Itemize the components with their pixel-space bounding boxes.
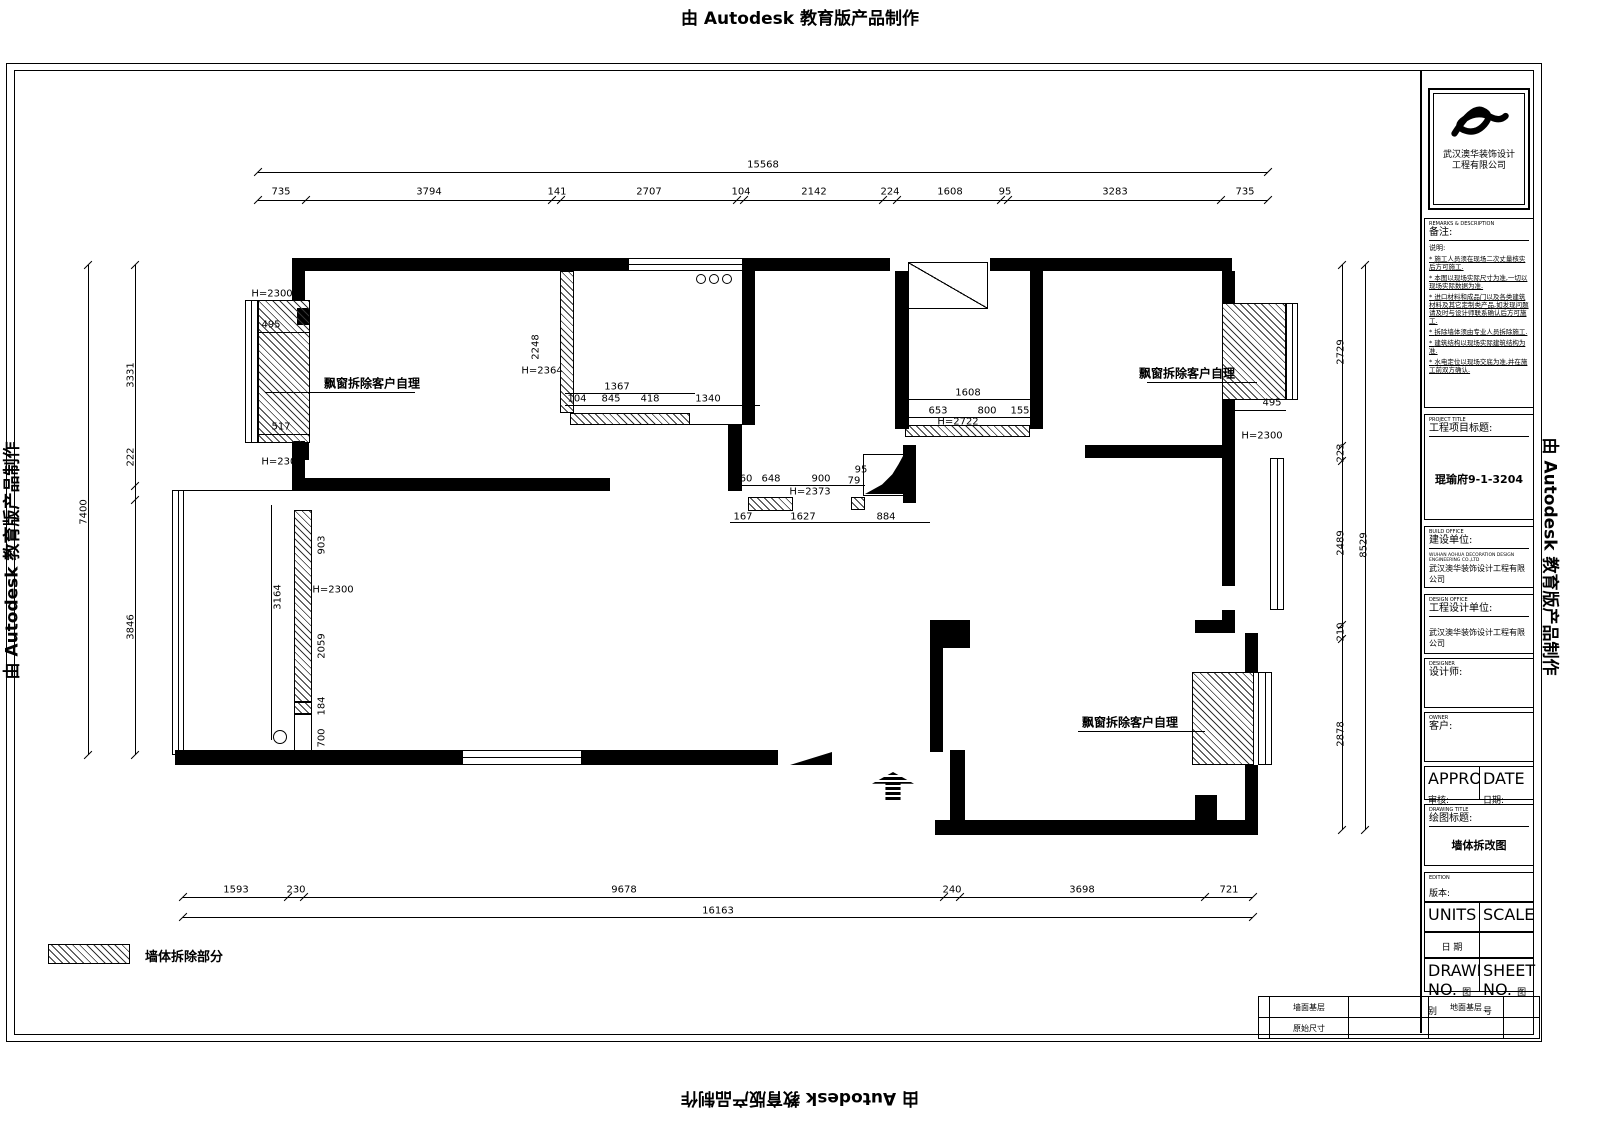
demolition-hatch <box>294 702 312 714</box>
wall <box>292 271 305 301</box>
dim-label: 1367 <box>604 382 629 393</box>
demolition-hatch <box>748 497 793 511</box>
dim-label: 721 <box>1219 885 1238 896</box>
demolition-hatch <box>560 271 574 413</box>
dim-label: 1340 <box>695 394 720 405</box>
base-layer-cell <box>1349 1018 1429 1039</box>
circle <box>273 730 287 744</box>
dim-label: H=2300 <box>261 457 302 468</box>
wall <box>292 478 610 491</box>
designer-label: 设计师: <box>1429 667 1529 680</box>
dim-label: 16163 <box>702 906 734 917</box>
dim-label: 1608 <box>955 388 980 399</box>
dim-label: 903 <box>317 535 328 554</box>
company-logo: 武汉澳华装饰设计 工程有限公司 <box>1428 88 1530 210</box>
legend-swatch <box>48 944 130 964</box>
remarks-section: REMARKS & DESCRIPTION 备注: 说明: 施工人员须在现场二次… <box>1424 218 1534 408</box>
logo-company-line1: 武汉澳华装饰设计 <box>1443 150 1515 160</box>
owner-unit-value-en: WUHAN AOHUA DECORATION DESIGN ENGINEERIN… <box>1429 553 1529 563</box>
wall <box>950 750 965 835</box>
stove-burner <box>696 274 706 284</box>
design-unit-label: 工程设计单位: <box>1429 603 1529 617</box>
wall <box>1222 271 1235 303</box>
base-layer-cell: 地面基层 <box>1429 997 1504 1018</box>
dim-label: 104 <box>567 394 586 405</box>
dim-label: 240 <box>942 885 961 896</box>
annotation-label: 飘窗拆除客户自理 <box>1139 365 1235 382</box>
dim-line <box>258 434 310 435</box>
dim-label: 95 <box>855 465 868 476</box>
dim-label: 735 <box>271 187 290 198</box>
dim-label: 1608 <box>937 187 962 198</box>
door-symbol <box>790 752 832 765</box>
dim-line <box>183 917 1253 918</box>
remarks-desc-label: 说明: <box>1429 243 1529 253</box>
base-layer-cell <box>1259 997 1270 1018</box>
dim-label: 224 <box>880 187 899 198</box>
dim-label: 9678 <box>611 885 636 896</box>
edition-label: 版本: <box>1429 889 1450 899</box>
project-title-section: PROJECT TITLE 工程项目标题: 琨瑜府9-1-3204 <box>1424 414 1534 520</box>
window <box>172 490 184 755</box>
dim-label: 495 <box>1262 398 1281 409</box>
dim-label: 2142 <box>801 187 826 198</box>
dim-label: 15568 <box>747 160 779 171</box>
remark-note: 进口材料和成品门以及各类建筑材料及其它定制类产品,如发现问题请及时与设计师联系确… <box>1429 293 1529 325</box>
dim-line <box>1222 410 1286 411</box>
window <box>1258 672 1272 765</box>
wall <box>742 258 755 425</box>
base-layer-cell <box>1504 997 1540 1018</box>
dim-label: 222 <box>126 447 137 466</box>
drawing-no-cell: DRAWING NO. 图别 <box>1424 958 1480 992</box>
edition-en: EDITION <box>1429 875 1529 881</box>
owner-unit-value: 武汉澳华装饰设计工程有限公司 <box>1429 563 1529 585</box>
window <box>1270 458 1284 610</box>
dim-line <box>730 522 930 523</box>
dim-line <box>565 405 760 406</box>
leader-line <box>1147 382 1257 383</box>
dim-label: H=2300 <box>312 585 353 596</box>
date2-label: 日 期 <box>1442 943 1463 953</box>
dim-label: 184 <box>317 696 328 715</box>
logo-mark <box>1444 100 1514 146</box>
customer-label: 客户: <box>1429 721 1529 734</box>
circle <box>898 314 907 323</box>
dim-label: 845 <box>601 394 620 405</box>
sheet-no-cell: SHEET NO. 图号 <box>1479 958 1534 992</box>
wall <box>930 620 970 648</box>
wall <box>930 648 943 752</box>
demolition-hatch <box>1192 672 1254 765</box>
leader-line <box>1078 731 1205 732</box>
stove-burner <box>709 274 719 284</box>
dim-label: H=2722 <box>937 417 978 428</box>
dim-line <box>905 399 1030 400</box>
dim-label: 2248 <box>531 334 542 359</box>
remarks-notes: 施工人员须在现场二次丈量核实后方可施工.本图以现场实际尺寸为准,一切以现场实际数… <box>1429 255 1529 374</box>
dim-label: 900 <box>811 474 830 485</box>
wall <box>935 820 1258 835</box>
remark-note: 本图以现场实际尺寸为准,一切以现场实际数据为准. <box>1429 274 1529 290</box>
dim-label: 3794 <box>416 187 441 198</box>
remark-note: 建筑结构以现场实际建筑结构为准. <box>1429 339 1529 355</box>
wall <box>1085 445 1235 458</box>
dim-label: 155 <box>1010 406 1029 417</box>
dim-label: 3331 <box>126 362 137 387</box>
wall <box>1245 633 1258 673</box>
window <box>245 300 258 443</box>
annotation-label: 飘窗拆除客户自理 <box>324 375 420 392</box>
dim-label: 418 <box>640 394 659 405</box>
dim-label: 495 <box>261 320 280 331</box>
dim-label: 167 <box>733 512 752 523</box>
dim-line <box>258 200 1268 201</box>
base-layer-cell <box>1349 997 1429 1018</box>
wall <box>990 258 1232 271</box>
base-layer-cell <box>1259 1018 1270 1039</box>
window <box>1286 303 1298 400</box>
dim-label: 141 <box>547 187 566 198</box>
dim-label: 104 <box>731 187 750 198</box>
circle <box>898 326 907 335</box>
lineh <box>690 424 755 425</box>
drawing-title-section: DRAWING TITLE 绘图标题: 墙体拆改图 <box>1424 804 1534 866</box>
dim-label: 230 <box>286 885 305 896</box>
owner-unit-label: 建设单位: <box>1429 535 1529 549</box>
dim-label: 2707 <box>636 187 661 198</box>
annotation-label: 飘窗拆除客户自理 <box>1082 714 1178 731</box>
units-cell: UNITS 单位 <box>1424 902 1480 932</box>
dim-label: H=2300 <box>251 289 292 300</box>
wall <box>1195 620 1235 633</box>
wall <box>1195 795 1217 820</box>
customer-section: OWNER 客户: <box>1424 712 1534 762</box>
dim-label: 60 <box>740 474 753 485</box>
dim-label: 648 <box>761 474 780 485</box>
demolition-hatch <box>851 497 865 510</box>
date2-blank-cell <box>1479 932 1534 958</box>
wall <box>582 750 778 765</box>
edition-section: EDITION 版本: <box>1424 872 1534 902</box>
dim-line <box>258 332 310 333</box>
dim-label: 95 <box>999 187 1012 198</box>
entry-arrow <box>872 772 914 800</box>
remarks-label: 备注: <box>1429 227 1529 241</box>
dim-label: 3164 <box>273 584 284 609</box>
base-layer-cell: 原始尺寸 <box>1270 1018 1349 1039</box>
design-unit-value: 武汉澳华装饰设计工程有限公司 <box>1429 627 1529 649</box>
designer-section: DESIGNER 设计师: <box>1424 658 1534 708</box>
dim-line <box>258 172 1268 173</box>
date-en: DATE <box>1483 769 1525 788</box>
dim-label: 884 <box>876 512 895 523</box>
demolition-hatch <box>570 413 690 425</box>
wall <box>292 258 628 271</box>
approve-cell: APPROVED 审核: <box>1424 766 1480 800</box>
window <box>462 750 582 765</box>
units-en: UNITS <box>1428 905 1476 924</box>
base-layer-table: 墙面基层地面基层原始尺寸 <box>1258 996 1540 1039</box>
dim-label: 1593 <box>223 885 248 896</box>
owner-unit-section: BUILD OFFICE 建设单位: WUHAN AOHUA DECORATIO… <box>1424 526 1534 588</box>
dim-label: 3846 <box>126 614 137 639</box>
drawing-title-label: 绘图标题: <box>1429 813 1529 827</box>
dim-label: 7400 <box>79 499 90 524</box>
dim-line <box>271 505 272 740</box>
base-layer-cell <box>1429 1018 1504 1039</box>
drawing-title-value: 墙体拆改图 <box>1429 837 1529 853</box>
dim-label: 1627 <box>790 512 815 523</box>
box <box>294 714 312 752</box>
stove-burner <box>722 274 732 284</box>
dim-label: H=2300 <box>1241 431 1282 442</box>
dim-label: 700 <box>317 728 328 747</box>
wall <box>1030 271 1043 429</box>
wall <box>895 271 909 429</box>
scale-en: SCALE <box>1483 905 1534 924</box>
wall <box>1245 765 1258 822</box>
date2-cell: 日 期 <box>1424 932 1480 958</box>
remark-note: 施工人员须在现场二次丈量核实后方可施工. <box>1429 255 1529 271</box>
demolition-hatch <box>294 510 312 702</box>
wall <box>175 750 462 765</box>
wall <box>748 258 890 271</box>
dim-label: 735 <box>1235 187 1254 198</box>
remark-note: 拆除墙体须由专业人员拆除施工. <box>1429 328 1529 336</box>
base-layer-cell: 墙面基层 <box>1270 997 1349 1018</box>
wall <box>1222 458 1235 586</box>
project-title-label: 工程项目标题: <box>1429 423 1529 437</box>
dim-line <box>135 265 136 755</box>
dim-label: 2878 <box>1336 721 1347 746</box>
dim-label: 3698 <box>1069 885 1094 896</box>
dim-label: 8529 <box>1359 532 1370 557</box>
base-layer-cell <box>1504 1018 1540 1039</box>
dim-label: 2729 <box>1336 339 1347 364</box>
demolition-hatch <box>1222 303 1286 400</box>
logo-company-line2: 工程有限公司 <box>1452 161 1506 171</box>
dim-label: 517 <box>271 422 290 433</box>
dim-label: H=2373 <box>789 487 830 498</box>
dim-label: H=2364 <box>521 366 562 377</box>
window <box>628 258 748 271</box>
remark-note: 水电定位以现场交底为准,并在施工前双方确认. <box>1429 358 1529 374</box>
dim-label: 653 <box>928 406 947 417</box>
dim-label: 3283 <box>1102 187 1127 198</box>
dim-label: 223 <box>1336 443 1347 462</box>
dim-label: 210 <box>1336 622 1347 641</box>
shaft <box>908 262 988 309</box>
lineh <box>172 490 294 491</box>
leader-line <box>265 392 415 393</box>
dim-line <box>183 897 1253 898</box>
floor-plan: 1556873537941412707104214222416089532837… <box>0 0 1600 1131</box>
dim-label: 2059 <box>317 633 328 658</box>
project-title-value: 琨瑜府9-1-3204 <box>1429 471 1529 487</box>
design-unit-section: DESIGN OFFICE 工程设计单位: 武汉澳华装饰设计工程有限公司 <box>1424 594 1534 654</box>
scale-cell: SCALE 比例 <box>1479 902 1534 932</box>
date-cell: DATE 日期: <box>1479 766 1534 800</box>
legend-label: 墙体拆除部分 <box>145 946 223 965</box>
dim-label: 2489 <box>1336 530 1347 555</box>
dim-label: 800 <box>977 406 996 417</box>
dim-label: 79 <box>848 476 861 487</box>
